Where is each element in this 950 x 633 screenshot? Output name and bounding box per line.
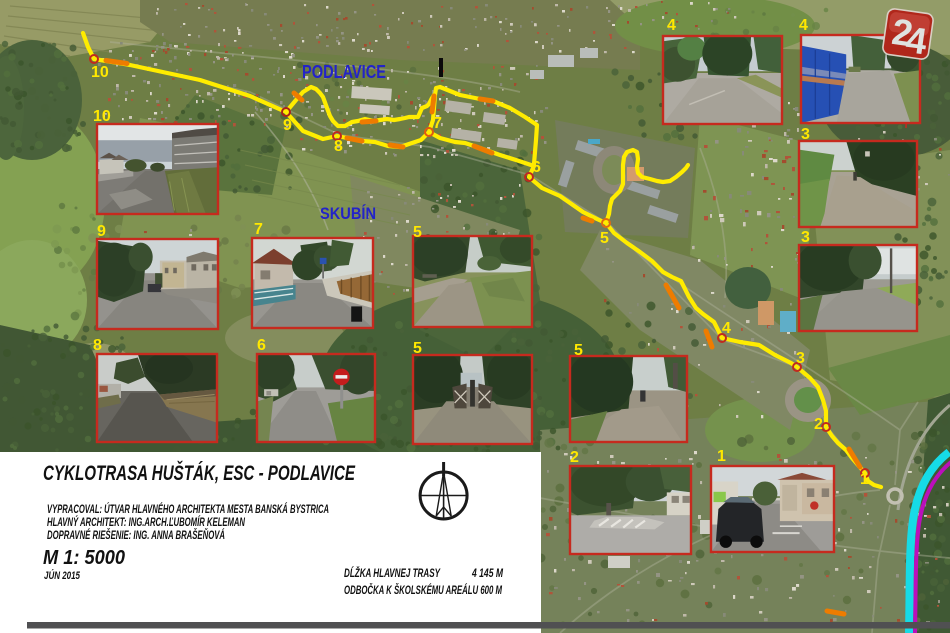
svg-text:3: 3 — [801, 229, 810, 246]
svg-text:CYKLOTRASA HUŠTÁK, ESC - PODL: CYKLOTRASA HUŠTÁK, ESC - PODLAVICE — [43, 461, 356, 485]
svg-text:VYPRACOVAL: ÚTVAR HLAVNÉHO ARC: VYPRACOVAL: ÚTVAR HLAVNÉHO ARCHITEKTA ME… — [47, 503, 329, 516]
svg-text:1: 1 — [717, 448, 726, 465]
svg-text:9: 9 — [283, 117, 292, 134]
svg-text:2: 2 — [570, 449, 579, 466]
svg-text:5: 5 — [600, 230, 609, 247]
svg-text:DĹŽKA HLAVNEJ TRASY: DĹŽKA HLAVNEJ TRASY — [344, 567, 441, 580]
svg-text:HLAVNÝ ARCHITEKT: ING.ARCH.ĽUB: HLAVNÝ ARCHITEKT: ING.ARCH.ĽUBOMÍR KELEM… — [47, 516, 245, 529]
svg-text:2: 2 — [814, 416, 823, 433]
svg-text:4: 4 — [799, 17, 808, 34]
svg-text:7: 7 — [254, 221, 263, 238]
svg-text:3: 3 — [801, 126, 810, 143]
svg-text:3: 3 — [796, 350, 805, 367]
svg-text:M 1: 5000: M 1: 5000 — [43, 547, 125, 569]
svg-text:4: 4 — [722, 320, 731, 337]
svg-text:4 145 M: 4 145 M — [471, 568, 503, 580]
svg-text:10: 10 — [93, 108, 111, 125]
svg-text:10: 10 — [91, 64, 109, 81]
svg-text:5: 5 — [413, 340, 422, 357]
svg-text:JÚN 2015: JÚN 2015 — [44, 569, 81, 582]
svg-text:PODLAVICE: PODLAVICE — [302, 62, 386, 82]
svg-text:6: 6 — [257, 337, 266, 354]
svg-text:5: 5 — [574, 342, 583, 359]
svg-text:SKUBÍN: SKUBÍN — [320, 204, 376, 223]
svg-text:8: 8 — [334, 138, 343, 155]
svg-text:DOPRAVNÉ RIEŠENIE: ING. ANNA B: DOPRAVNÉ RIEŠENIE: ING. ANNA BRAŠEŇOVÁ — [47, 529, 225, 542]
svg-text:4: 4 — [667, 17, 676, 34]
svg-text:6: 6 — [532, 159, 541, 176]
svg-text:8: 8 — [93, 337, 102, 354]
svg-text:7: 7 — [433, 115, 442, 132]
svg-text:ODBOČKA K ŠKOLSKÉMU AREÁLU 60: ODBOČKA K ŠKOLSKÉMU AREÁLU 600 M — [344, 584, 502, 597]
svg-text:9: 9 — [97, 223, 106, 240]
svg-text:1: 1 — [860, 471, 869, 488]
svg-text:5: 5 — [413, 224, 422, 241]
